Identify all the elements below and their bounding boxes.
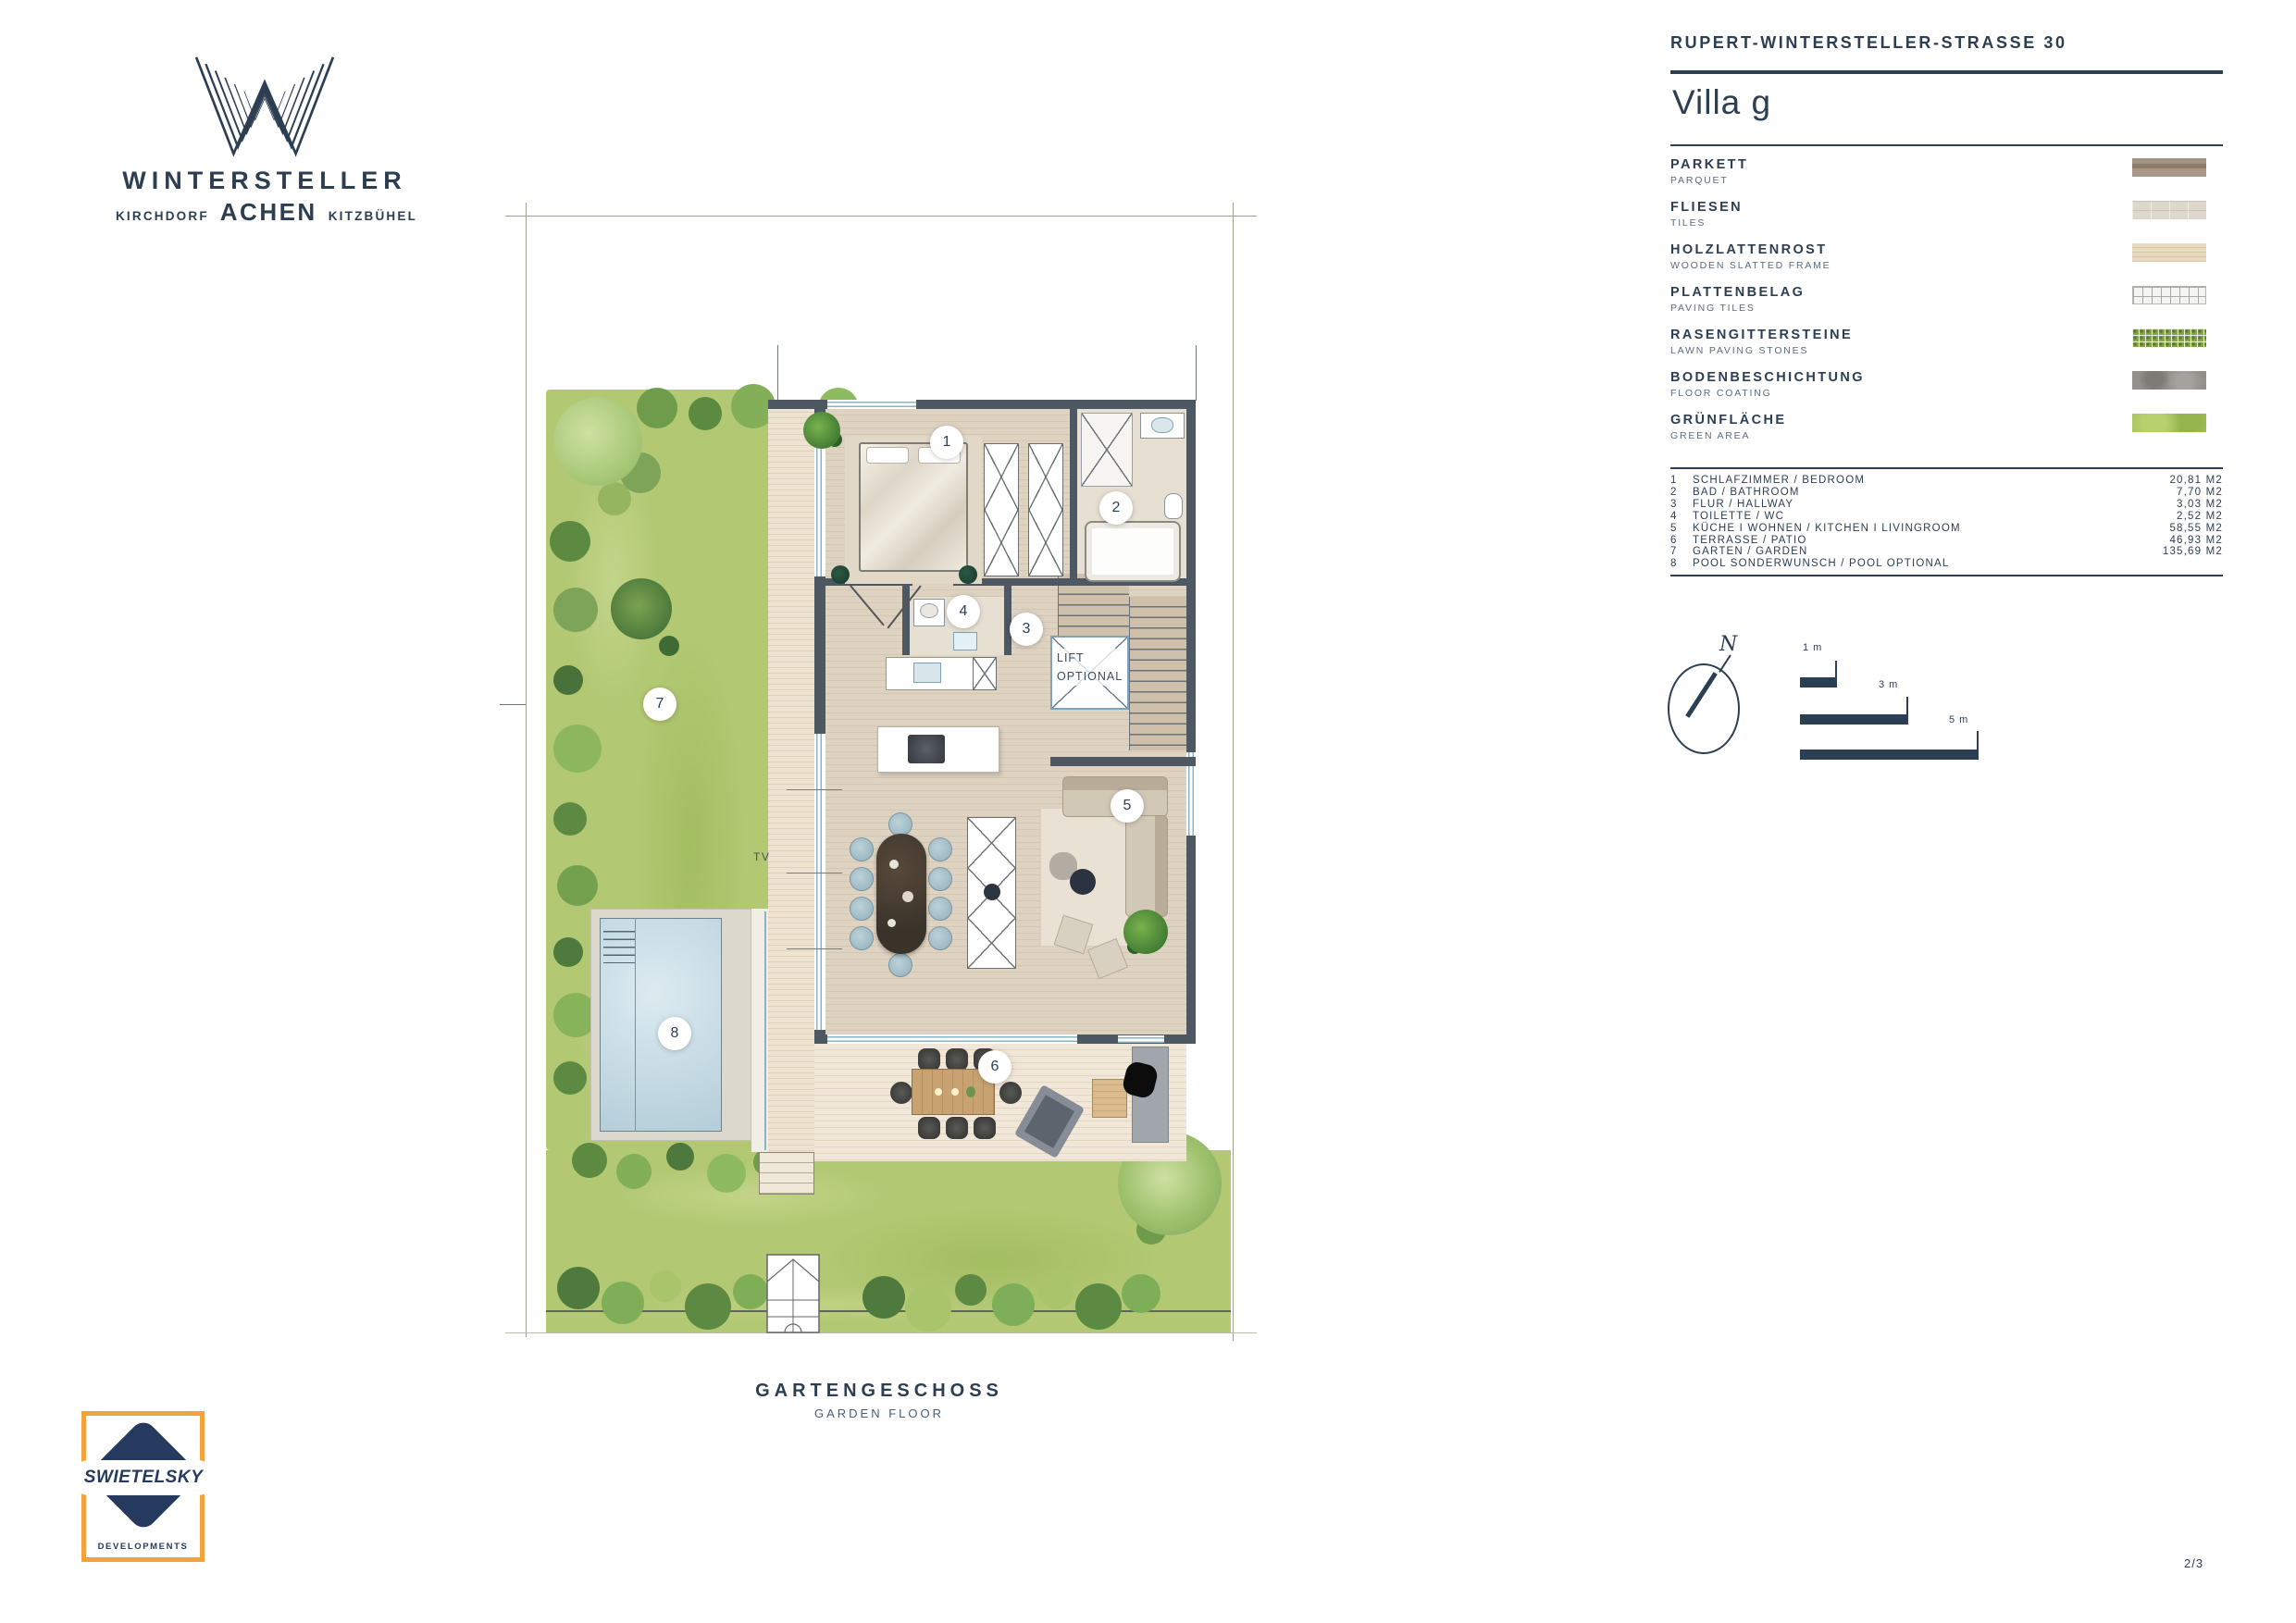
room-area: 58,55 M2 bbox=[2169, 523, 2223, 535]
pool-lane-line bbox=[635, 918, 636, 1132]
caption-subtitle: GARDEN FLOOR bbox=[526, 1406, 1233, 1420]
site-boundary-bottom bbox=[505, 1332, 1257, 1333]
caption-title: GARTENGESCHOSS bbox=[526, 1381, 1233, 1402]
green-area-swatch bbox=[2132, 414, 2206, 432]
brand-cities: KIRCHDORF ACHEN KITZBÜHEL bbox=[81, 198, 452, 227]
swietelsky-logo: SWIETELSKY DEVELOPMENTS bbox=[81, 1411, 205, 1562]
pool-ladder-icon bbox=[603, 924, 635, 963]
wall bbox=[814, 576, 825, 734]
scale-bar-5m bbox=[1800, 750, 1979, 760]
table-row: 6TERRASSE / PATIO46,93 M2 bbox=[1670, 535, 2223, 547]
tree-row-top bbox=[637, 388, 677, 428]
room-area: 3,03 M2 bbox=[2177, 499, 2223, 511]
scale-bar-3m bbox=[1800, 714, 1908, 725]
scale-label-3m: 3 m bbox=[1879, 679, 1898, 690]
dining-chair bbox=[928, 897, 952, 921]
table-plate bbox=[889, 860, 899, 869]
cooktop bbox=[908, 735, 945, 763]
dimension-tick bbox=[777, 345, 778, 401]
page-number: 2/3 bbox=[2184, 1556, 2203, 1570]
table-row: 8POOL SONDERWUNSCH / POOL OPTIONAL bbox=[1670, 558, 2223, 570]
patio-chair bbox=[918, 1117, 940, 1139]
site-boundary-top bbox=[505, 216, 1257, 217]
window bbox=[814, 442, 825, 576]
table-row: 1SCHLAFZIMMER / BEDROOM20,81 M2 bbox=[1670, 475, 2223, 487]
swietelsky-band: SWIETELSKY bbox=[71, 1460, 216, 1495]
room-badge-hallway: 3 bbox=[1010, 613, 1043, 646]
tiles-swatch bbox=[2132, 201, 2206, 219]
room-name: SCHLAFZIMMER / BEDROOM bbox=[1693, 475, 2169, 487]
scale-tick bbox=[1835, 661, 1837, 688]
wood-slats-swatch bbox=[2132, 243, 2206, 262]
lift-label-line2: OPTIONAL bbox=[1057, 667, 1123, 686]
dining-table bbox=[876, 834, 926, 954]
tv-label: TV bbox=[753, 850, 770, 863]
table-centerpiece bbox=[966, 1086, 975, 1097]
scale-tick bbox=[1977, 731, 1979, 760]
room-number: 8 bbox=[1670, 558, 1693, 570]
wardrobe bbox=[984, 443, 1019, 576]
info-panel: RUPERT-WINTERSTELLER-STRASSE 30 Villa g … bbox=[1670, 33, 2223, 626]
brand-city-left: KIRCHDORF bbox=[116, 209, 209, 227]
room-number: 5 bbox=[1670, 523, 1693, 535]
room-name: KÜCHE I WOHNEN / KITCHEN I LIVINGROOM bbox=[1693, 523, 2169, 535]
window bbox=[827, 400, 916, 409]
room-name: POOL SONDERWUNSCH / POOL OPTIONAL bbox=[1693, 558, 2223, 570]
room-badge-garden: 7 bbox=[643, 688, 676, 721]
compass-needle-tail-icon bbox=[1719, 654, 1731, 672]
tree-column-left bbox=[550, 521, 590, 562]
pillow bbox=[866, 447, 909, 464]
wc-sink-bowl bbox=[920, 603, 938, 618]
dining-chair bbox=[850, 867, 874, 891]
divider-thin bbox=[1670, 144, 2223, 146]
dimension-tick bbox=[500, 704, 526, 705]
table-row: 2BAD / BATHROOM7,70 M2 bbox=[1670, 487, 2223, 499]
material-legend: PARKETT PARQUET FLIESEN TILES HOLZLATTEN… bbox=[1670, 157, 2223, 455]
patio-chair bbox=[890, 1082, 912, 1104]
room-badge-bathroom: 2 bbox=[1099, 491, 1133, 525]
room-number: 2 bbox=[1670, 487, 1693, 499]
room-name: BAD / BATHROOM bbox=[1693, 487, 2177, 499]
room-number: 4 bbox=[1670, 511, 1693, 523]
dimension-tick bbox=[1196, 345, 1197, 401]
table-row: 3FLUR / HALLWAY3,03 M2 bbox=[1670, 499, 2223, 511]
street-address: RUPERT-WINTERSTELLER-STRASSE 30 bbox=[1670, 33, 2067, 53]
legend-row-gruenflaeche: GRÜNFLÄCHE GREEN AREA bbox=[1670, 413, 2223, 455]
washbasin bbox=[953, 632, 977, 650]
legend-row-bodenbeschichtung: BODENBESCHICHTUNG FLOOR COATING bbox=[1670, 370, 2223, 413]
table-row: 4TOILETTE / WC2,52 M2 bbox=[1670, 511, 2223, 523]
sliding-glass-door bbox=[827, 1035, 1077, 1044]
shelf-speaker bbox=[984, 884, 1000, 900]
room-number: 3 bbox=[1670, 499, 1693, 511]
room-number: 7 bbox=[1670, 546, 1693, 558]
dining-chair bbox=[928, 837, 952, 861]
room-badge-wc: 4 bbox=[947, 595, 980, 628]
shrubs-below-pool bbox=[572, 1143, 607, 1178]
room-badge-living: 5 bbox=[1111, 789, 1144, 823]
wall bbox=[1070, 409, 1077, 586]
site-boundary-left bbox=[526, 203, 527, 1337]
wardrobe bbox=[1028, 443, 1063, 576]
wall bbox=[1186, 400, 1196, 752]
dining-chair bbox=[850, 837, 874, 861]
patio-chair bbox=[918, 1048, 940, 1071]
lift-label-line1: LIFT bbox=[1057, 649, 1123, 667]
legend-row-holzlattenrost: HOLZLATTENROST WOODEN SLATTED FRAME bbox=[1670, 242, 2223, 285]
swietelsky-name: SWIETELSKY bbox=[84, 1468, 204, 1488]
room-name: FLUR / HALLWAY bbox=[1693, 499, 2177, 511]
section-mark bbox=[787, 873, 842, 873]
wall bbox=[1186, 836, 1196, 1044]
palm-tree bbox=[611, 578, 672, 639]
room-area: 135,69 M2 bbox=[2163, 546, 2223, 558]
room-number: 1 bbox=[1670, 475, 1693, 487]
wintersteller-monogram-icon bbox=[187, 51, 342, 160]
divider-thick bbox=[1670, 70, 2223, 74]
wall bbox=[1050, 757, 1196, 766]
sofa-chaise-section bbox=[1125, 815, 1168, 917]
patio-chair bbox=[974, 1117, 996, 1139]
scale-tick bbox=[1906, 697, 1908, 725]
table-plate bbox=[887, 919, 896, 927]
table-row: 7GARTEN / GARDEN135,69 M2 bbox=[1670, 546, 2223, 558]
room-area: 7,70 M2 bbox=[2177, 487, 2223, 499]
bathtub bbox=[1085, 521, 1181, 582]
dining-chair bbox=[888, 953, 912, 977]
room-area-table: 1SCHLAFZIMMER / BEDROOM20,81 M2 2BAD / B… bbox=[1670, 467, 2223, 576]
north-label: N bbox=[1719, 633, 1737, 656]
tree-cluster bbox=[553, 397, 642, 486]
table-candle bbox=[935, 1088, 942, 1096]
wood-deck-strip bbox=[768, 407, 814, 1161]
side-table bbox=[1092, 1079, 1127, 1118]
paving-swatch bbox=[2132, 286, 2206, 304]
section-mark bbox=[787, 948, 842, 949]
coffee-table-dark bbox=[1070, 869, 1096, 895]
table-candle bbox=[951, 1088, 959, 1096]
plant-pot bbox=[959, 565, 977, 584]
brand-name: WINTERSTELLER bbox=[81, 167, 448, 195]
plan-caption: GARTENGESCHOSS GARDEN FLOOR bbox=[526, 1381, 1233, 1420]
scale-bar-1m bbox=[1800, 677, 1837, 688]
dining-chair bbox=[850, 926, 874, 950]
patio-chair bbox=[946, 1048, 968, 1071]
legend-row-parkett: PARKETT PARQUET bbox=[1670, 157, 2223, 200]
shower bbox=[1081, 413, 1133, 487]
wall bbox=[814, 1035, 827, 1044]
kitchen-sink bbox=[913, 663, 941, 683]
wall bbox=[902, 586, 910, 655]
room-area: 20,81 M2 bbox=[2169, 475, 2223, 487]
lawn-stone-swatch bbox=[2132, 328, 2206, 347]
table-row: 5KÜCHE I WOHNEN / KITCHEN I LIVINGROOM58… bbox=[1670, 523, 2223, 535]
room-name: GARTEN / GARDEN bbox=[1693, 546, 2163, 558]
floor-coating-swatch bbox=[2132, 371, 2206, 390]
swietelsky-division: DEVELOPMENTS bbox=[86, 1542, 200, 1552]
brand-city-center: ACHEN bbox=[220, 198, 317, 227]
room-area: 46,93 M2 bbox=[2169, 535, 2223, 547]
brand-city-right: KITZBÜHEL bbox=[329, 209, 417, 227]
room-name: TERRASSE / PATIO bbox=[1693, 535, 2169, 547]
sink-bowl bbox=[1151, 417, 1173, 433]
hedge-row-bottom bbox=[557, 1267, 600, 1309]
section-mark bbox=[787, 789, 842, 790]
dining-chair bbox=[928, 867, 952, 891]
patio-chair bbox=[946, 1117, 968, 1139]
garden-steps bbox=[759, 1152, 814, 1195]
room-area: 2,52 M2 bbox=[2177, 511, 2223, 523]
lift-label: LIFT OPTIONAL bbox=[1055, 649, 1124, 686]
room-number: 6 bbox=[1670, 535, 1693, 547]
window bbox=[1118, 1035, 1164, 1043]
room-badge-terrace: 6 bbox=[978, 1050, 1011, 1084]
legend-row-rasengittersteine: RASENGITTERSTEINE LAWN PAVING STONES bbox=[1670, 328, 2223, 370]
room-name: TOILETTE / WC bbox=[1693, 511, 2177, 523]
room-badge-pool: 8 bbox=[658, 1017, 691, 1050]
scale-label-5m: 5 m bbox=[1949, 714, 1968, 725]
garden-gate bbox=[766, 1254, 820, 1333]
wall bbox=[1004, 586, 1011, 655]
legend-row-plattenbelag: PLATTENBELAG PAVING TILES bbox=[1670, 285, 2223, 328]
glass-balustrade bbox=[764, 911, 766, 1150]
staircase bbox=[1129, 597, 1186, 750]
brochure-page: WINTERSTELLER KIRCHDORF ACHEN KITZBÜHEL … bbox=[0, 0, 2296, 1623]
plant-living bbox=[1123, 910, 1168, 954]
compass-icon bbox=[1668, 663, 1740, 754]
table-plate bbox=[902, 891, 913, 902]
dining-chair bbox=[850, 897, 874, 921]
garden-fence-line bbox=[546, 1310, 1231, 1312]
window bbox=[814, 734, 825, 1030]
patio-chair bbox=[999, 1082, 1022, 1104]
scale-label-1m: 1 m bbox=[1803, 642, 1822, 653]
kitchen-cabinet bbox=[973, 657, 997, 690]
toilet bbox=[1164, 493, 1183, 519]
villa-title: Villa g bbox=[1672, 83, 1771, 122]
legend-row-fliesen: FLIESEN TILES bbox=[1670, 200, 2223, 242]
site-boundary-right bbox=[1233, 203, 1234, 1341]
plant-bedroom bbox=[803, 412, 840, 449]
parquet-swatch bbox=[2132, 158, 2206, 177]
floor-plan: LIFT OPTIONAL bbox=[526, 216, 1233, 1372]
plant-pot bbox=[831, 565, 850, 584]
dining-chair bbox=[928, 926, 952, 950]
wall bbox=[916, 400, 1196, 409]
room-badge-bedroom: 1 bbox=[930, 426, 963, 459]
